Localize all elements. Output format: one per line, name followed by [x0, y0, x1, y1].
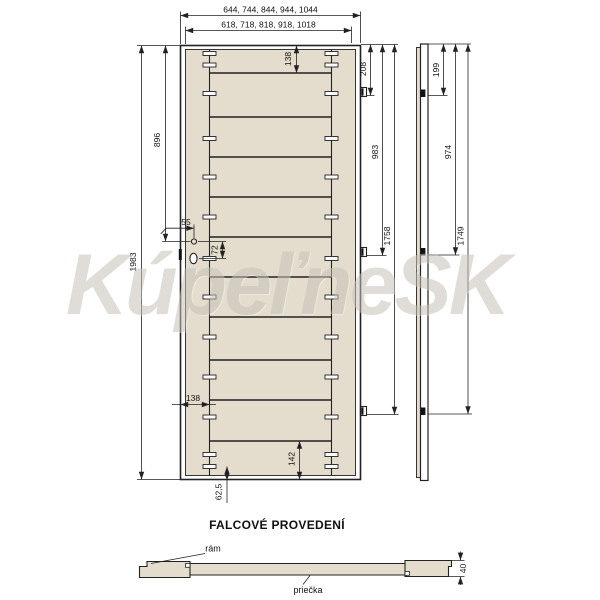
door-side-view: 199 974 1749 [417, 44, 473, 481]
joint-notch-right [405, 572, 410, 576]
horizontal-cross-section: FALCOVÉ PROVEDENÍ rám priečka 40 [140, 517, 469, 595]
frame-label: rám [205, 544, 221, 554]
front-hinge-dimensions: 208 983 1758 [358, 45, 399, 415]
dim-hinge1-side: 199 [431, 63, 441, 77]
frame-stile-right-section [405, 561, 452, 577]
dim-stile-width: 138 [186, 393, 200, 403]
dim-lock-height: 896 [152, 133, 162, 147]
top-dimensions: 644, 744, 844, 944, 1044 618, 718, 818, … [181, 5, 361, 45]
handle-hole [190, 253, 197, 263]
section-title: FALCOVÉ PROVEDENÍ [209, 517, 345, 532]
dim-bottom-rail: 142 [287, 452, 297, 466]
dim-hinge3-side: 1749 [456, 226, 466, 245]
technical-drawing-page: 644, 744, 844, 944, 1044 618, 718, 818, … [0, 0, 600, 600]
crossbar-leader-line [303, 576, 310, 585]
dim-hinge2-side: 974 [443, 145, 453, 159]
crossbar-section [190, 564, 405, 576]
dim-outer-widths: 644, 744, 844, 944, 1044 [223, 5, 318, 15]
door-front-view [179, 46, 367, 480]
dim-bottom-tenon: 62,5 [214, 483, 224, 500]
door-technical-drawing: 644, 744, 844, 944, 1044 618, 718, 818, … [0, 0, 600, 600]
dim-hinge2-front: 983 [370, 145, 380, 159]
crossbar-label: priečka [293, 585, 322, 595]
dim-top-rail: 138 [283, 52, 293, 66]
dim-lock-backset: 55 [181, 217, 191, 227]
dim-door-height: 1983 [128, 252, 138, 271]
dim-lock-spacing: 72 [210, 245, 220, 255]
dim-inner-widths: 618, 718, 818, 918, 1018 [221, 20, 316, 30]
dim-hinge3-front: 1758 [382, 226, 392, 245]
dim-door-thickness: 40 [458, 564, 468, 574]
joint-notch-left [186, 564, 191, 568]
frame-stile-left-section [140, 562, 191, 578]
dim-hinge1-front: 208 [358, 62, 368, 76]
lock-faceplate [179, 249, 182, 260]
hinge-markers-front [361, 88, 367, 416]
